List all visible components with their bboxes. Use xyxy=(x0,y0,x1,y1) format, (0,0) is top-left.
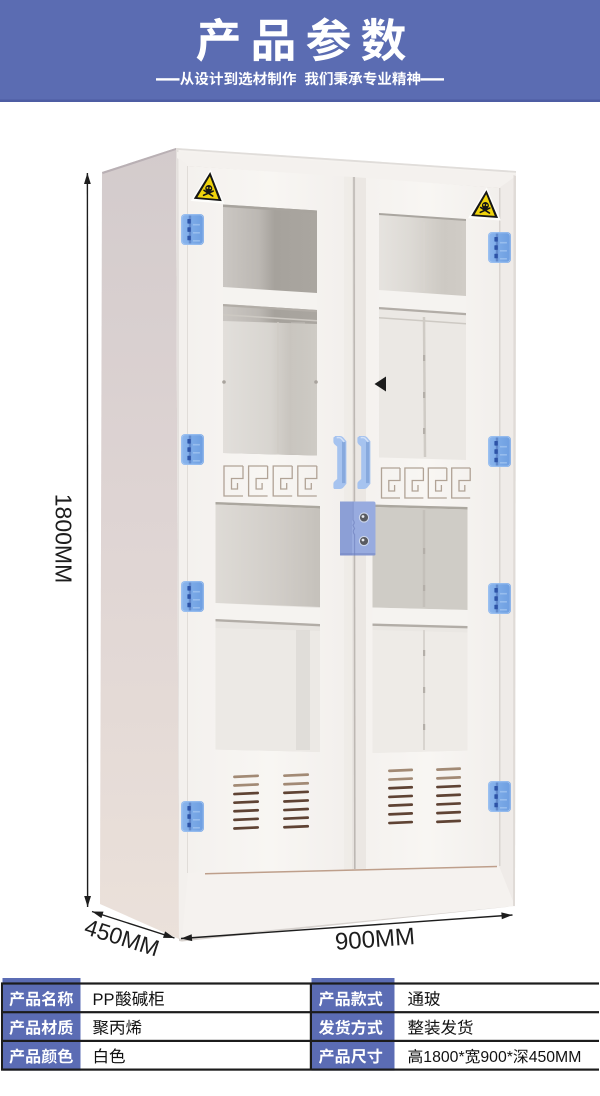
svg-text:1800MM: 1800MM xyxy=(51,494,77,583)
svg-text:900MM: 900MM xyxy=(334,923,416,956)
svg-text:PP: PP xyxy=(93,991,115,1009)
svg-text:450MM: 450MM xyxy=(529,1049,582,1066)
svg-text:1800*: 1800* xyxy=(423,1049,464,1066)
svg-text:900*: 900* xyxy=(480,1049,513,1066)
